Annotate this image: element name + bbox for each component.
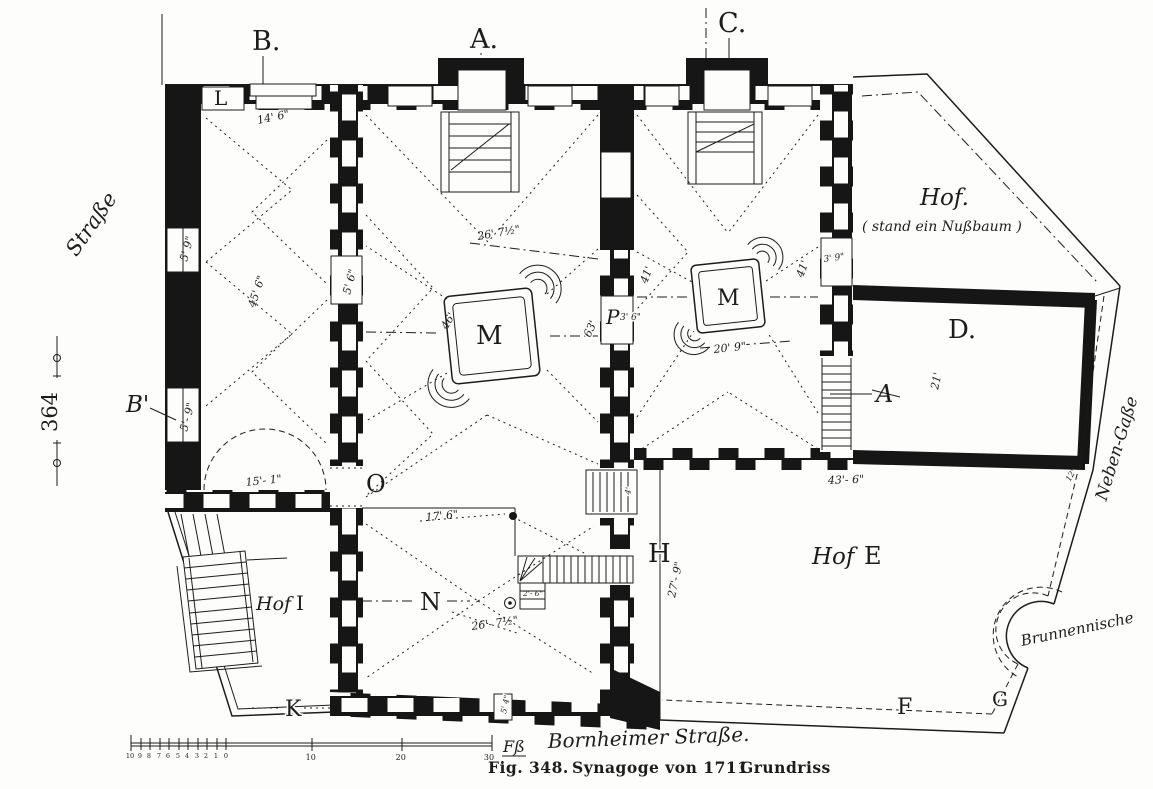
wall-leftwing-south: [165, 490, 330, 512]
section-a: A.: [469, 24, 498, 55]
scale-major-labels: 10 20 30: [306, 753, 494, 762]
dim-41-west: 41': [637, 265, 655, 286]
stair-room-n: [362, 508, 633, 609]
hof-i-prefix: Hof: [255, 593, 294, 615]
dim-21: 21': [928, 371, 944, 391]
room-a-stairs: A: [874, 380, 893, 408]
column-dot: [509, 512, 517, 520]
dim-2-6: 2'- 6": [522, 589, 543, 598]
street-bottom: Bornheimer Straße.: [546, 722, 750, 753]
portal-a-opening: [458, 70, 506, 110]
hof-top-inset: [862, 92, 1098, 283]
window-pier-top: [601, 152, 631, 198]
dim-45-6: 45' 6": [245, 274, 268, 310]
room-k: K: [285, 697, 302, 722]
hof-e-letter: E: [864, 542, 882, 570]
portal-c-opening: [704, 70, 750, 110]
hof-top-outline: [853, 74, 1120, 286]
floor-plan-scan: 364 B. A. C.: [0, 0, 1153, 789]
window-14-6: [250, 84, 316, 96]
section-b: B.: [252, 26, 280, 57]
hof-top-note: ( stand ein Nußbaum ): [862, 219, 1022, 235]
scale-unit: Fß: [502, 737, 525, 756]
stair-east-hall: [688, 112, 762, 184]
street-left: Straße: [61, 188, 122, 261]
street-right: Neben-Gaße: [1092, 394, 1143, 504]
room-d: D.: [948, 315, 976, 345]
room-m-east: M: [717, 286, 740, 311]
dim-12: 12': [1064, 468, 1078, 483]
room-m-main: M: [476, 321, 503, 351]
page-number: 364: [38, 392, 62, 432]
dim-14-6: 14' 6": [256, 107, 291, 126]
room-h: H: [648, 539, 671, 569]
passage-o: [330, 466, 363, 508]
dim-43-6: 43'- 6": [827, 473, 865, 487]
wall-left-outer: [165, 85, 201, 512]
hof-top-name: Hof.: [919, 185, 969, 211]
dim-26-7-top: 26' 7½": [475, 223, 521, 243]
room-n: N: [420, 588, 441, 616]
figure-caption: Fig. 348. Synagoge von 1711 Grundriss: [488, 758, 831, 777]
wall-d-south: [853, 450, 1085, 470]
masonry-walls: [165, 85, 1120, 731]
dim-3-6: 3' 6": [620, 313, 641, 323]
hof-e-prefix: Hof: [811, 544, 858, 570]
room-b-prime: B': [125, 392, 149, 418]
well-niche-label: Brunnennische: [1018, 608, 1135, 650]
room-p: P: [605, 305, 620, 329]
page-margin-marks: 364: [38, 336, 62, 486]
dim-17-6: 17' 6": [425, 508, 459, 524]
grundriss-drawing: 364 B. A. C.: [0, 0, 1153, 789]
scale-bar: 10 9 8 7 6 5 4 3 2 1 0 10 20 30 Fß: [126, 735, 526, 762]
dim-15-1: 15'- 1": [245, 472, 282, 489]
dim-20-9: 20' 9": [712, 340, 747, 356]
dim-26-7-n: 26'- 7½": [470, 614, 519, 634]
room-g: G: [992, 687, 1008, 711]
room-f: F: [897, 695, 912, 720]
wall-d-east: [1077, 300, 1097, 464]
hof-e-dashed: [1048, 296, 1104, 596]
dim-41-east: 41': [793, 259, 811, 280]
wall-d-north: [853, 285, 1095, 308]
wall-leftwing-east: [330, 85, 363, 703]
room-l: L: [214, 86, 227, 110]
courtyard-outlines: [168, 74, 1120, 733]
stair-main-hall: [441, 112, 519, 192]
room-o: O: [366, 470, 386, 498]
scale-minor-labels: 10 9 8 7 6 5 4 3 2 1 0: [126, 752, 228, 760]
hof-i-letter: I: [296, 591, 304, 615]
vault-lines-left-wing: [204, 118, 327, 490]
section-c: C.: [718, 8, 746, 39]
vault-lines-room-n: [362, 512, 594, 678]
